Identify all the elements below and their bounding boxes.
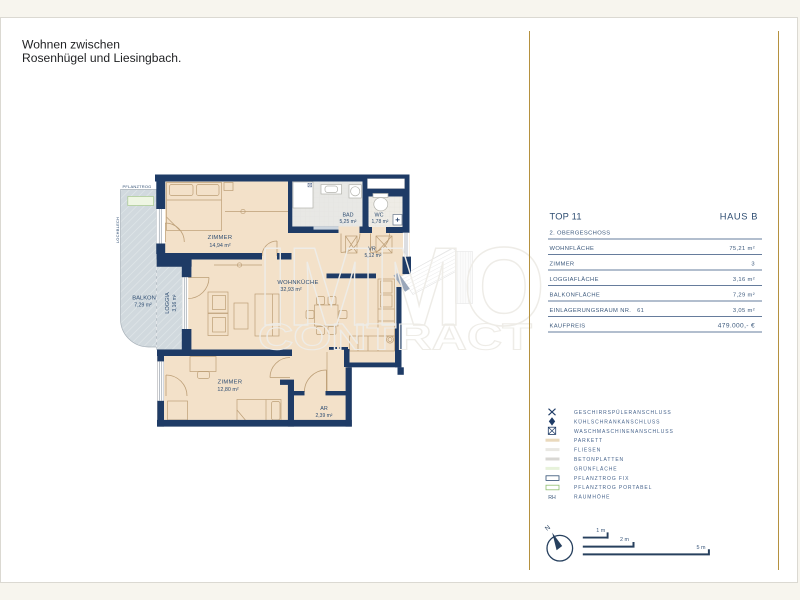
svg-text:5,25 m²: 5,25 m² <box>340 219 357 225</box>
svg-text:WC: WC <box>375 213 384 219</box>
svg-text:AR: AR <box>320 406 328 412</box>
svg-text:1,78 m²: 1,78 m² <box>372 219 389 225</box>
svg-text:LOCHBLECH: LOCHBLECH <box>115 217 120 243</box>
svg-text:RAUMHÖHE: RAUMHÖHE <box>574 494 610 501</box>
svg-text:14,94 m²: 14,94 m² <box>209 243 230 249</box>
svg-text:LOGGIA: LOGGIA <box>165 292 171 314</box>
svg-text:32,93 m²: 32,93 m² <box>280 287 301 293</box>
svg-text:BALKONFLÄCHE: BALKONFLÄCHE <box>550 292 601 299</box>
svg-text:EINLAGERUNGSRAUM NR. 61: EINLAGERUNGSRAUM NR. 61 <box>550 308 645 314</box>
svg-text:2 m: 2 m <box>620 537 629 543</box>
svg-text:PARKETT: PARKETT <box>574 438 603 444</box>
svg-text:HAUS B: HAUS B <box>720 212 758 222</box>
svg-text:479.000,- €: 479.000,- € <box>718 323 755 330</box>
svg-text:PFLANZTROG PORTABEL: PFLANZTROG PORTABEL <box>574 485 652 491</box>
svg-text:LOGGIAFLÄCHE: LOGGIAFLÄCHE <box>550 276 599 283</box>
svg-text:2,39 m²: 2,39 m² <box>316 413 333 419</box>
svg-text:7,29 m²: 7,29 m² <box>733 293 755 299</box>
svg-text:2. OBERGESCHOSS: 2. OBERGESCHOSS <box>550 231 611 237</box>
svg-text:12,80 m²: 12,80 m² <box>217 387 238 393</box>
svg-text:FLIESEN: FLIESEN <box>574 448 601 454</box>
svg-text:BAD: BAD <box>342 213 353 219</box>
svg-text:GRÜNFLÄCHE: GRÜNFLÄCHE <box>574 465 617 472</box>
svg-text:VR: VR <box>368 247 376 253</box>
svg-text:5 m: 5 m <box>697 545 706 551</box>
svg-text:ZIMMER: ZIMMER <box>550 262 575 268</box>
svg-text:Wohnen zwischen: Wohnen zwischen <box>22 37 120 51</box>
svg-text:N: N <box>544 524 552 533</box>
svg-text:GESCHIRRSPÜLERANSCHLUSS: GESCHIRRSPÜLERANSCHLUSS <box>574 409 672 416</box>
svg-text:ZIMMER: ZIMMER <box>208 235 233 241</box>
svg-text:RH: RH <box>548 495 556 501</box>
svg-text:75,21 m²: 75,21 m² <box>729 246 755 252</box>
svg-text:TOP 11: TOP 11 <box>550 212 582 222</box>
svg-text:PFLANZTROG FIX: PFLANZTROG FIX <box>574 476 629 482</box>
svg-text:5,12 m²: 5,12 m² <box>365 253 382 259</box>
svg-text:WASCHMASCHINENANSCHLUSS: WASCHMASCHINENANSCHLUSS <box>574 429 674 435</box>
svg-text:1 m: 1 m <box>596 528 605 534</box>
svg-text:3,05 m²: 3,05 m² <box>733 308 755 314</box>
svg-text:Rosenhügel und Liesingbach.: Rosenhügel und Liesingbach. <box>22 51 181 65</box>
svg-text:WOHNFLÄCHE: WOHNFLÄCHE <box>550 245 595 252</box>
svg-text:BETONPLATTEN: BETONPLATTEN <box>574 457 624 463</box>
svg-text:KAUFPREIS: KAUFPREIS <box>550 324 586 330</box>
svg-text:3,16 m²: 3,16 m² <box>172 294 178 311</box>
svg-text:ZIMMER: ZIMMER <box>218 380 243 386</box>
svg-text:7,29 m²: 7,29 m² <box>134 303 152 309</box>
svg-text:PFLANZTROG: PFLANZTROG <box>123 184 152 189</box>
svg-text:WOHNKÜCHE: WOHNKÜCHE <box>277 279 318 286</box>
svg-text:CONTRACT: CONTRACT <box>258 317 533 358</box>
svg-text:BALKON: BALKON <box>132 296 156 302</box>
svg-text:KÜHLSCHRANKANSCHLUSS: KÜHLSCHRANKANSCHLUSS <box>574 418 660 425</box>
svg-text:3: 3 <box>751 262 755 268</box>
svg-text:3,16 m²: 3,16 m² <box>733 277 755 283</box>
